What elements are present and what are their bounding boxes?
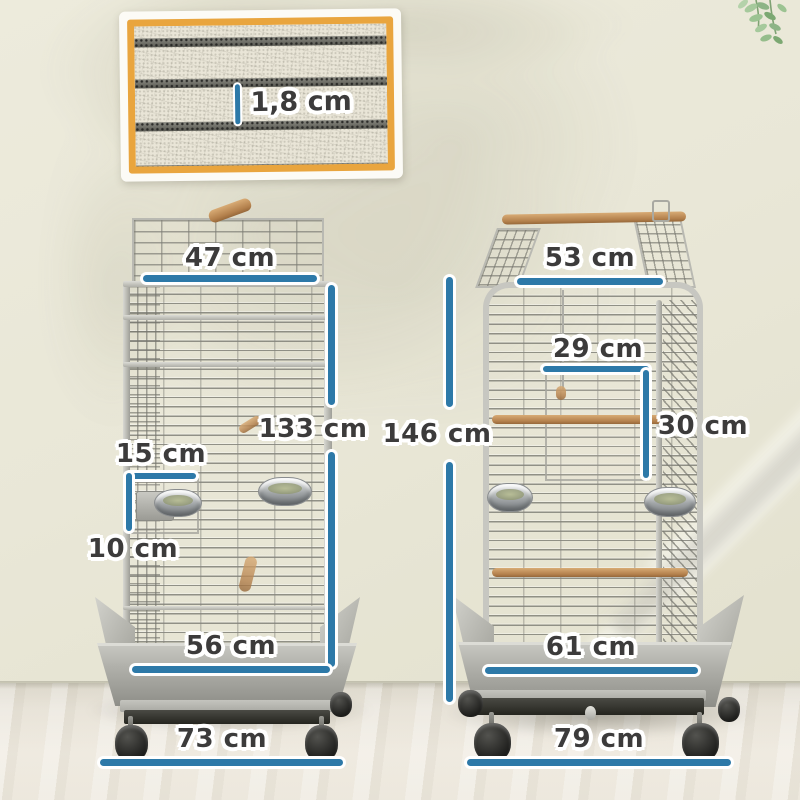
plant-leaves	[718, 0, 800, 52]
measure-line-cage-width-left	[132, 666, 330, 673]
caster-wheel	[474, 723, 511, 762]
frame-rail	[123, 315, 332, 320]
measure-line-door-height-left	[126, 473, 132, 531]
inset-orange-frame: 1,8 cm	[127, 16, 395, 173]
wire-spacing-label: 1,8 cm	[250, 86, 352, 118]
measure-label-base-width-left: 73 cm	[177, 724, 267, 754]
caster-wheel	[330, 692, 352, 717]
measure-line-cage-width-right	[485, 667, 698, 674]
caster-wheel	[682, 723, 719, 762]
measure-label-door-width-left: 15 cm	[116, 439, 206, 469]
measure-line-base-width-left	[100, 759, 343, 766]
measure-label-top-width-right: 53 cm	[545, 243, 635, 273]
frame-rail	[123, 362, 332, 367]
food-bowl	[644, 487, 696, 517]
food-bowl	[258, 477, 312, 506]
caster-wheel	[305, 725, 338, 762]
measure-line-height-left-lower	[328, 452, 335, 667]
wooden-perch-lower	[492, 568, 688, 577]
measure-line-top-width-left	[143, 275, 317, 282]
measure-line-door-width-left	[128, 473, 196, 479]
measure-label-cage-width-right: 61 cm	[546, 632, 636, 662]
measure-line-height-right-upper	[446, 277, 453, 407]
side-grid-panel	[128, 286, 160, 654]
panel-hook	[652, 200, 670, 222]
frame-rail	[123, 606, 332, 610]
frame-post-left	[123, 282, 130, 656]
measure-label-height-left: 133 cm	[259, 414, 368, 444]
measure-line-top-width-right	[517, 278, 663, 285]
inset-wire-bar	[136, 162, 388, 173]
base-frame-dark	[124, 710, 330, 724]
measure-label-door-width-right: 29 cm	[553, 334, 643, 364]
measure-line-base-width-right	[467, 759, 731, 766]
wire-spacing-tick	[235, 84, 240, 124]
measure-label-height-right: 146 cm	[383, 419, 492, 449]
product-dimension-image: 47 cm 133 cm 15 cm 10 cm 56 cm 73 cm 53 …	[0, 0, 800, 800]
measure-label-door-height-right: 30 cm	[658, 411, 748, 441]
frame-post-inner	[656, 300, 662, 652]
tray-knob	[585, 706, 596, 720]
measure-line-door-width-right	[543, 366, 649, 372]
measure-label-top-width-left: 47 cm	[185, 243, 275, 273]
food-bowl	[487, 483, 533, 512]
measure-line-door-height-right	[643, 370, 649, 478]
caster-wheel	[718, 697, 740, 722]
caster-wheel	[458, 690, 483, 717]
open-top-panel-right	[632, 213, 696, 288]
hanging-toy	[556, 386, 566, 400]
wire-spacing-detail-inset: 1,8 cm	[119, 8, 403, 181]
food-bowl	[154, 489, 202, 517]
measure-line-height-right-lower	[446, 462, 453, 702]
tray-wing-right	[700, 595, 744, 649]
measure-line-height-left-upper	[328, 285, 335, 405]
measure-label-cage-width-left: 56 cm	[186, 631, 276, 661]
measure-label-base-width-right: 79 cm	[554, 724, 644, 754]
caster-wheel	[115, 725, 148, 762]
measure-label-door-height-left: 10 cm	[88, 534, 178, 564]
